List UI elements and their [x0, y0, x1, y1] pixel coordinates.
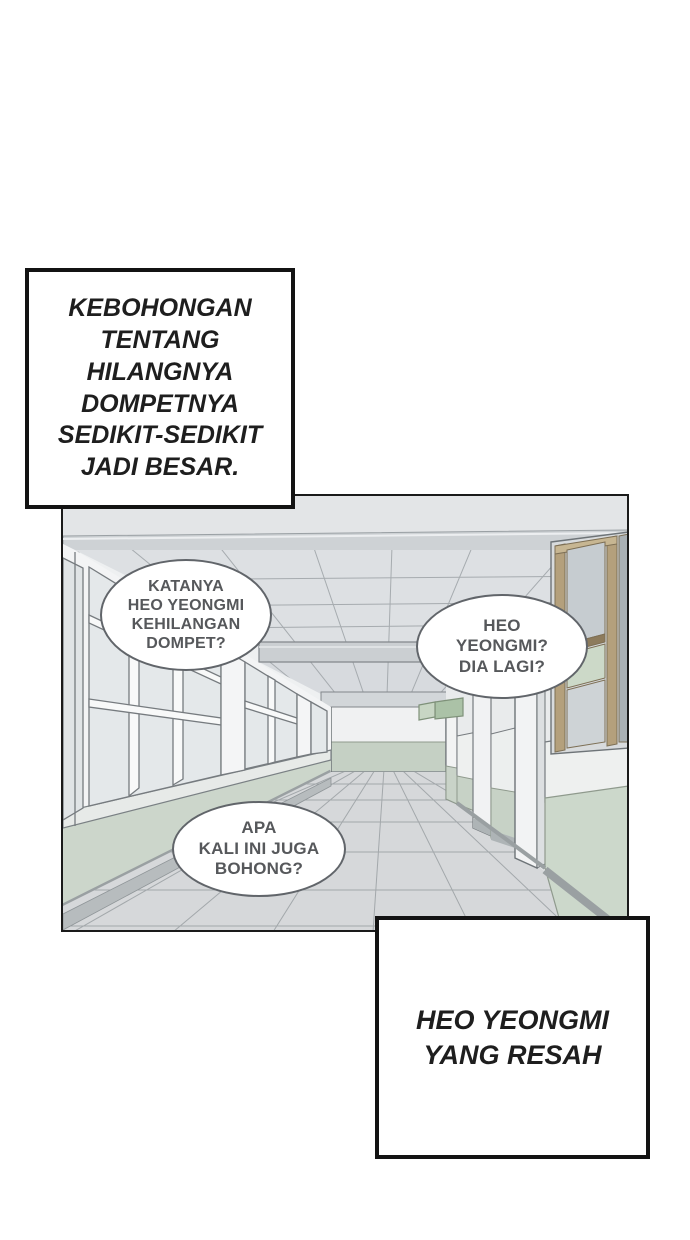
bubble-text-line: BOHONG?	[215, 859, 303, 879]
narration-line: JADI BESAR.	[81, 452, 239, 484]
narration-line: DOMPETNYA	[81, 389, 239, 421]
bubble-text-line: KALI INI JUGA	[199, 839, 320, 859]
right-wainscot	[545, 786, 629, 932]
bubble-text-line: KATANYA	[148, 577, 224, 596]
bubble-text-line: KEHILANGAN	[132, 615, 241, 634]
narration-box: HEO YEONGMI YANG RESAH	[375, 916, 650, 1159]
narration-line: HEO YEONGMI	[416, 1003, 609, 1037]
bubble-text-line: HEO YEONGMI	[128, 596, 245, 615]
bubble-text-line: APA	[241, 818, 276, 838]
hallway-illustration	[63, 496, 629, 932]
speech-bubble: HEO YEONGMI? DIA LAGI?	[416, 594, 588, 699]
narration-line: KEBOHONGAN	[68, 293, 251, 325]
narration-box: KEBOHONGAN TENTANG HILANGNYA DOMPETNYA S…	[25, 268, 295, 509]
bubble-text-line: HEO	[483, 616, 520, 636]
comic-page: KATANYA HEO YEONGMI KEHILANGAN DOMPET? H…	[0, 0, 690, 1240]
narration-line: HILANGNYA	[87, 357, 234, 389]
speech-bubble: KATANYA HEO YEONGMI KEHILANGAN DOMPET?	[100, 559, 272, 671]
bubble-text-line: DOMPET?	[146, 634, 226, 653]
bubble-text-line: DIA LAGI?	[459, 657, 545, 677]
narration-line: TENTANG	[101, 325, 220, 357]
comic-panel: KATANYA HEO YEONGMI KEHILANGAN DOMPET? H…	[61, 494, 629, 932]
speech-bubble: APA KALI INI JUGA BOHONG?	[172, 801, 346, 897]
bubble-text-line: YEONGMI?	[456, 636, 548, 656]
narration-line: YANG RESAH	[423, 1038, 601, 1072]
narration-line: SEDIKIT-SEDIKIT	[58, 420, 262, 452]
